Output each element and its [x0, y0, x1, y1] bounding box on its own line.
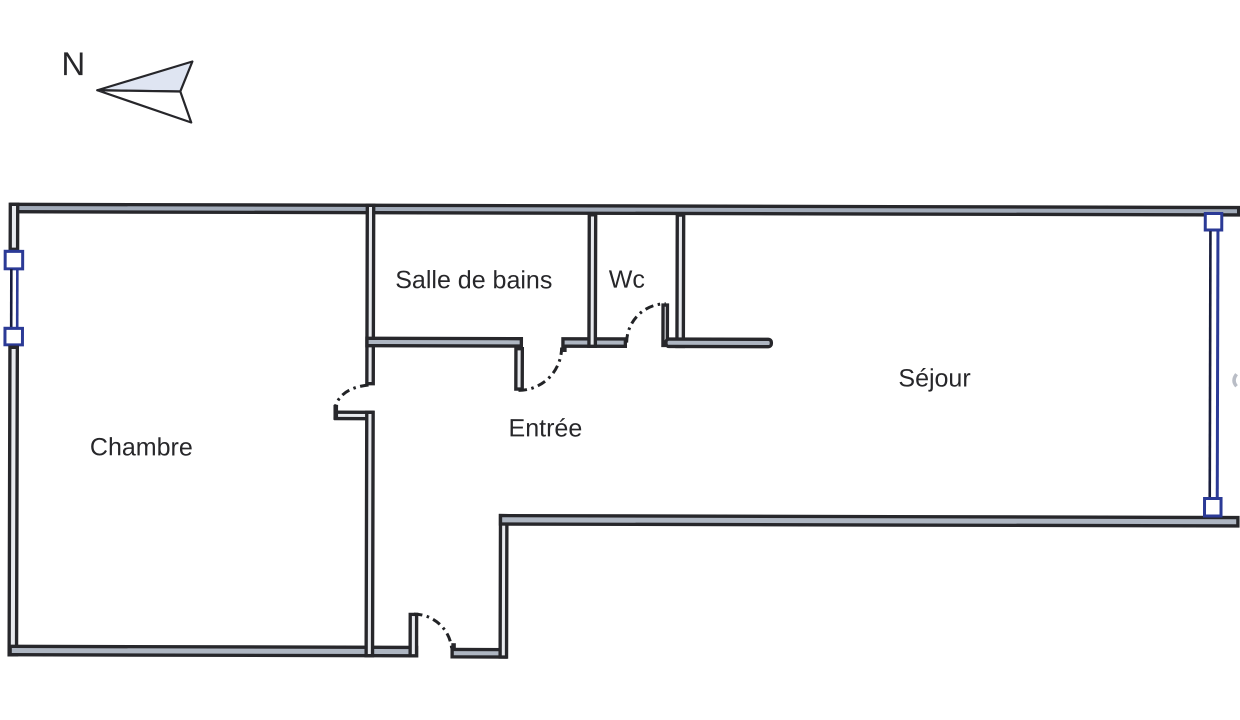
svg-text:N: N — [61, 45, 85, 82]
svg-text:Séjour: Séjour — [898, 364, 970, 392]
svg-text:Entrée: Entrée — [509, 414, 583, 442]
svg-text:Salle de bains: Salle de bains — [395, 266, 552, 294]
svg-text:Wc: Wc — [609, 266, 645, 294]
svg-text:Chambre: Chambre — [90, 433, 193, 461]
